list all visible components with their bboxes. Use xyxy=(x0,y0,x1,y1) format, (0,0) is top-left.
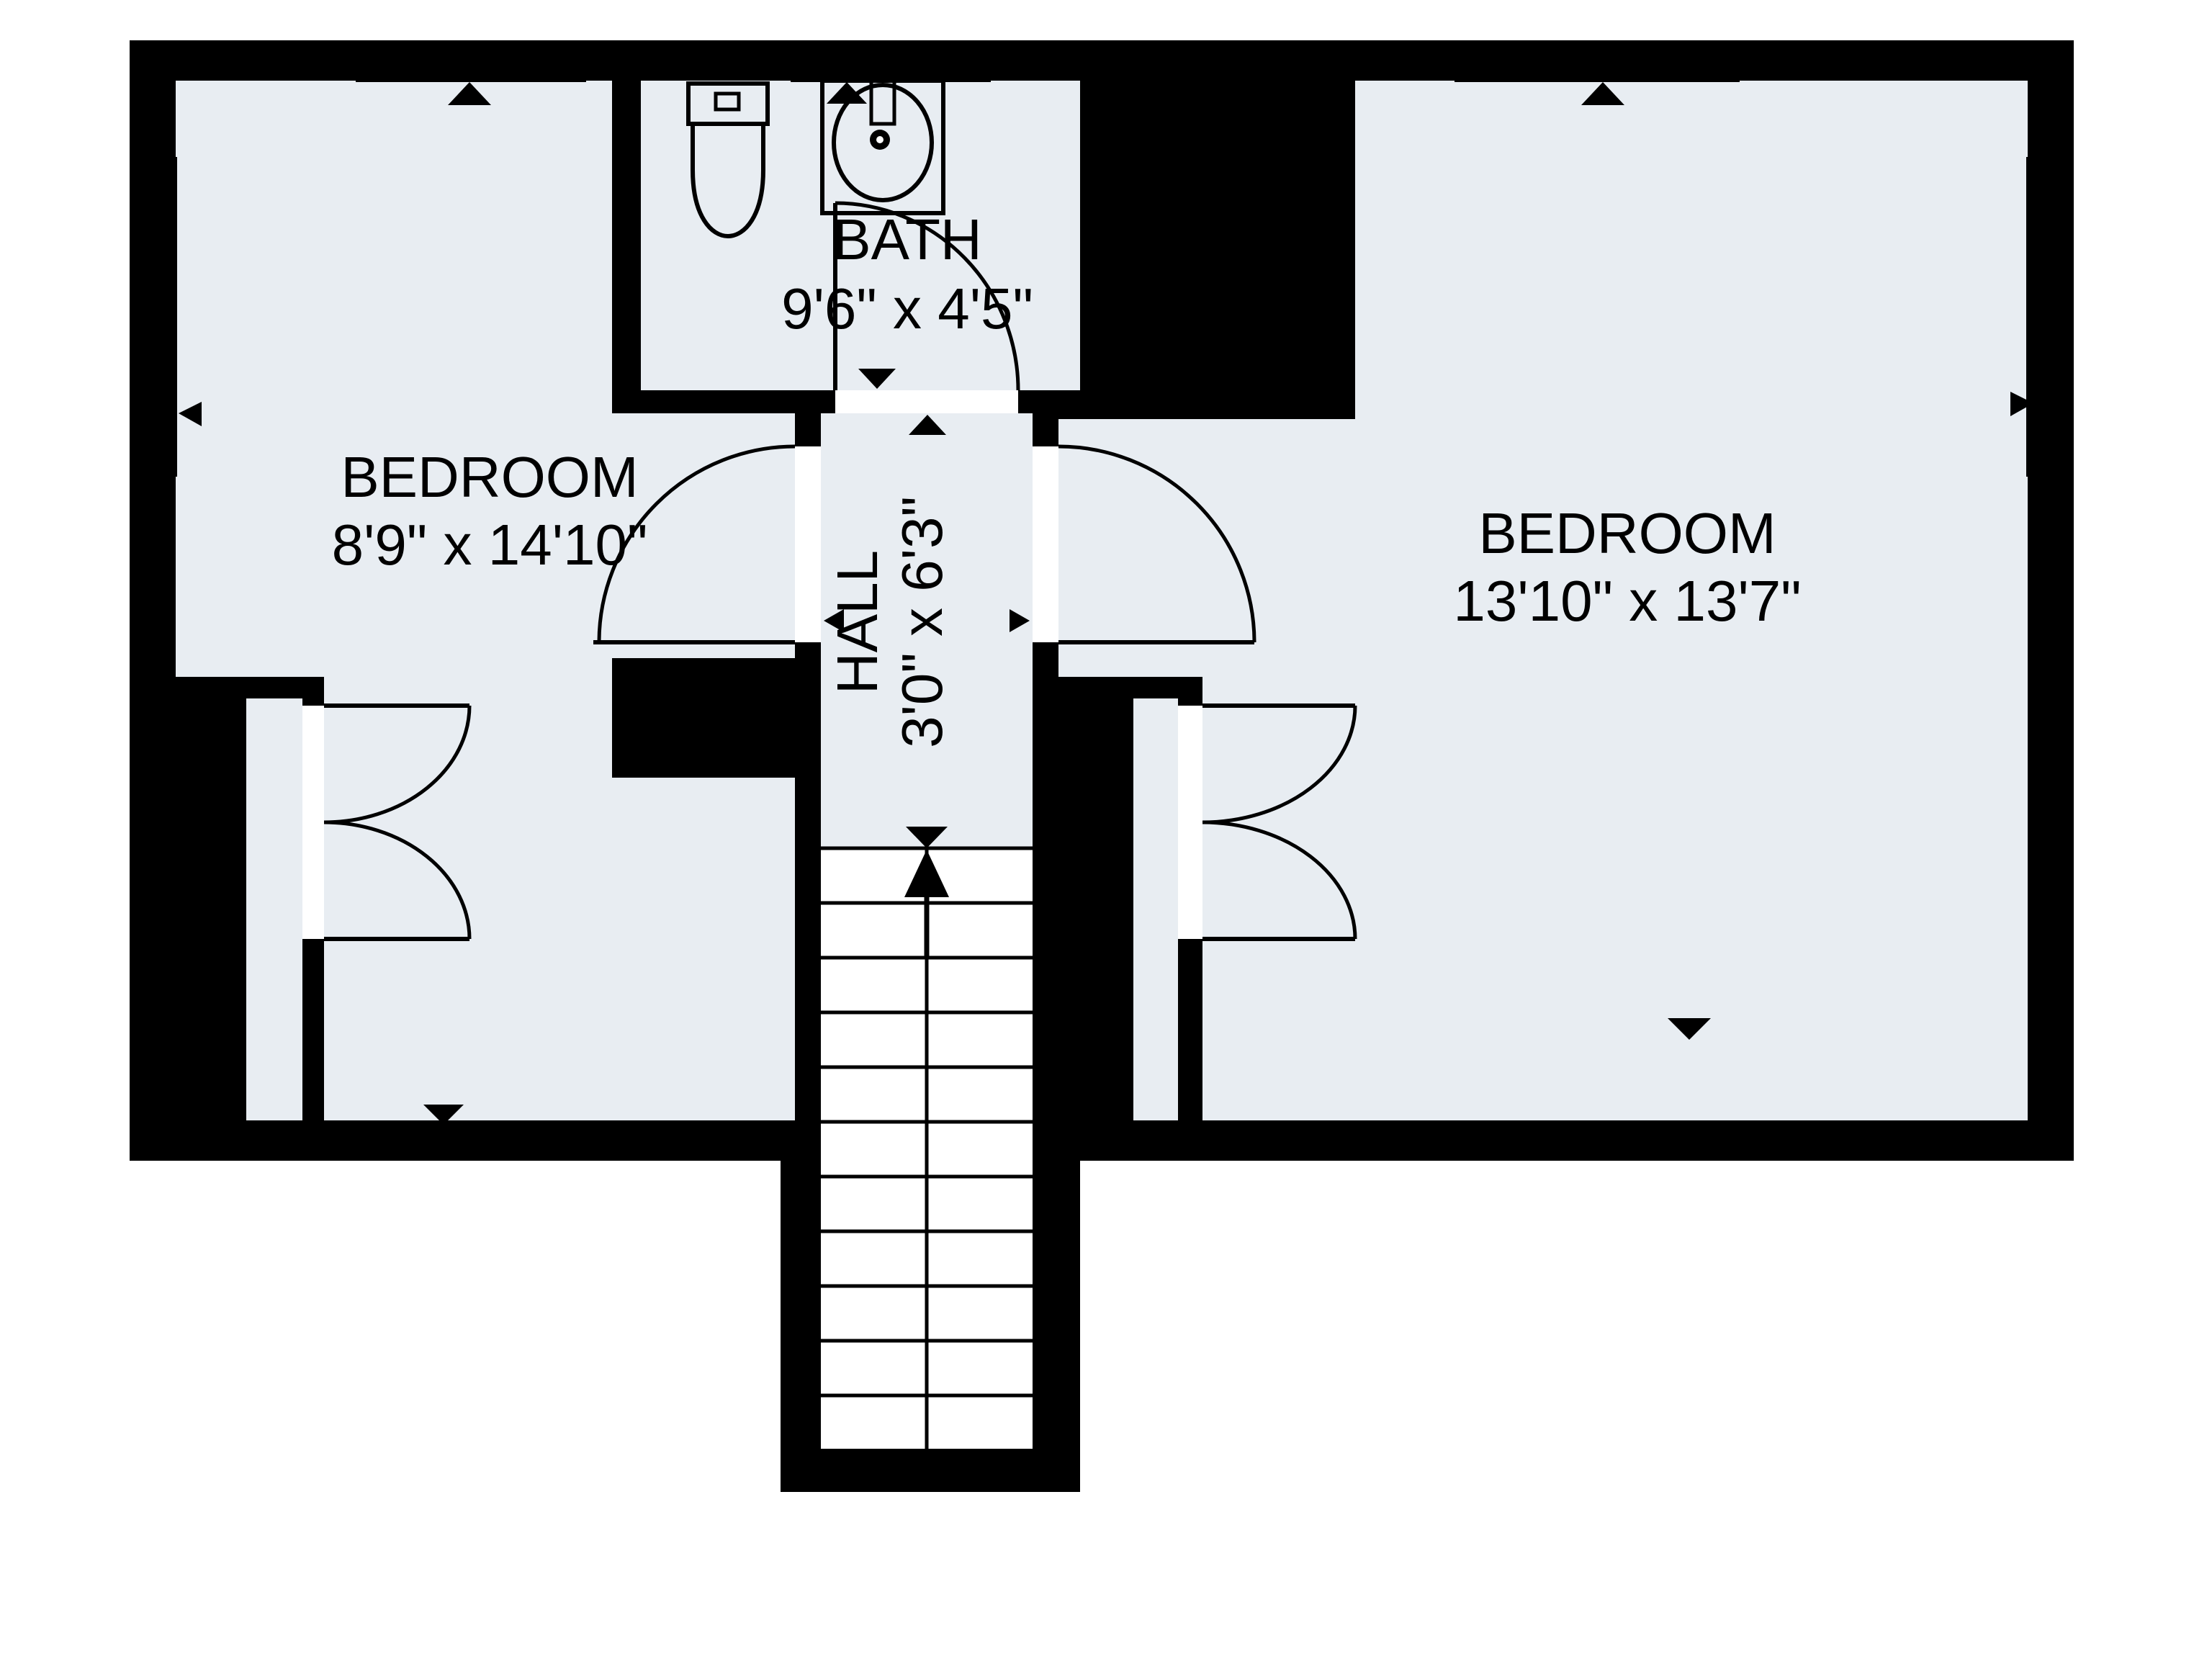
hall-right-doorway xyxy=(1033,446,1058,642)
hall-left-doorway xyxy=(795,446,821,642)
bedroom-right-label: BEDROOM xyxy=(1478,501,1776,565)
closet-right-floor-strip xyxy=(1132,698,1178,1120)
bedroom-left-dims: 8'9" x 14'10" xyxy=(332,513,648,577)
closet-left-floor-strip xyxy=(245,698,302,1120)
closet-right-doorway xyxy=(1178,706,1202,939)
hall-label: HALL xyxy=(825,550,889,694)
bedroom-left-label: BEDROOM xyxy=(341,445,638,509)
closet-left-doorway xyxy=(302,706,324,939)
bedroom-right-dims: 13'10" x 13'7" xyxy=(1453,569,1801,633)
hall-dims: 3'0" x 6'3" xyxy=(890,496,954,748)
stairs-up-arrow-icon xyxy=(821,827,1033,1449)
bath-doorway xyxy=(835,390,1018,413)
bath-dims: 9'6" x 4'5" xyxy=(781,276,1033,341)
bath-label: BATH xyxy=(832,207,981,271)
floor-plan: BEDROOM 8'9" x 14'10" BATH 9'6" x 4'5" B… xyxy=(0,0,2212,1659)
